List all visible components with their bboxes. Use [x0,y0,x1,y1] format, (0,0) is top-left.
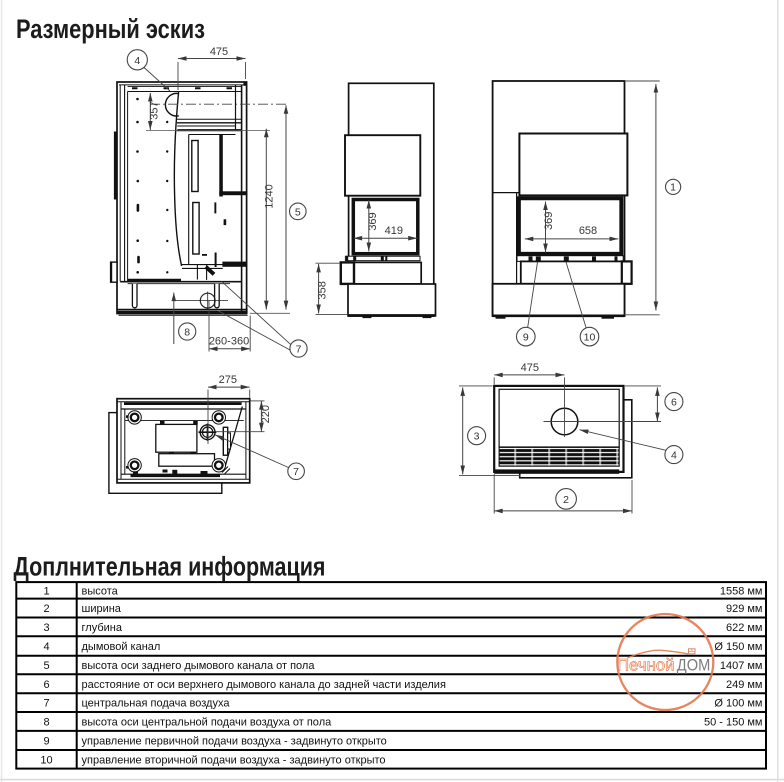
svg-text:50 - 150 мм: 50 - 150 мм [704,717,763,729]
svg-text:3: 3 [474,431,480,443]
svg-text:929 мм: 929 мм [726,603,763,615]
svg-text:Ø 150 мм: Ø 150 мм [714,641,762,653]
svg-text:1558 мм: 1558 мм [720,586,763,598]
svg-text:6: 6 [671,397,677,409]
svg-text:7: 7 [296,344,302,356]
svg-text:ширина: ширина [82,603,122,615]
svg-text:1407 мм: 1407 мм [720,660,763,672]
svg-text:управление первичной подачи во: управление первичной подачи воздуха - за… [82,736,387,748]
svg-text:10: 10 [40,754,52,766]
svg-text:7: 7 [43,698,49,710]
svg-text:10: 10 [584,331,596,343]
svg-text:Печной: Печной [617,655,675,674]
svg-text:8: 8 [184,327,190,339]
svg-text:475: 475 [210,46,228,58]
svg-text:357: 357 [149,101,161,119]
svg-text:5: 5 [43,660,49,672]
svg-text:419: 419 [385,225,403,237]
svg-text:260-360: 260-360 [209,336,249,348]
svg-text:Ø 100 мм: Ø 100 мм [714,698,762,710]
svg-text:дымовой канал: дымовой канал [82,641,161,653]
svg-text:220: 220 [260,405,272,423]
svg-text:1: 1 [670,182,676,194]
svg-text:управление вторичной подачи во: управление вторичной подачи воздуха - за… [82,754,386,766]
svg-text:5: 5 [295,206,301,218]
svg-text:8: 8 [43,717,49,729]
svg-text:центральная подача воздуха: центральная подача воздуха [82,698,231,710]
svg-text:ДОМ: ДОМ [677,655,711,674]
svg-text:2: 2 [563,494,569,506]
svg-text:2: 2 [43,603,49,615]
svg-text:расстояние от оси верхнего дым: расстояние от оси верхнего дымового кана… [82,679,446,691]
svg-text:высота оси центральной подачи: высота оси центральной подачи воздуха от… [82,717,333,729]
svg-text:6: 6 [43,679,49,691]
svg-text:4: 4 [671,450,677,462]
svg-text:369: 369 [543,212,555,230]
svg-text:1: 1 [43,586,49,598]
svg-text:475: 475 [521,362,539,374]
svg-text:4: 4 [134,55,140,67]
svg-text:Размерный эскиз: Размерный эскиз [16,14,205,44]
svg-text:249 мм: 249 мм [726,679,763,691]
svg-text:658: 658 [579,225,597,237]
svg-text:622 мм: 622 мм [726,622,763,634]
svg-text:глубина: глубина [82,622,123,634]
svg-text:9: 9 [523,331,529,343]
svg-text:высота: высота [82,586,119,598]
svg-text:9: 9 [43,736,49,748]
svg-text:358: 358 [316,281,328,299]
svg-text:7: 7 [293,466,299,478]
svg-text:Доплнительная информация: Доплнительная информация [14,552,326,582]
svg-text:высота оси заднего дымового ка: высота оси заднего дымового канала от по… [82,660,316,672]
svg-text:3: 3 [43,622,49,634]
svg-text:1240: 1240 [263,184,275,208]
svg-text:4: 4 [43,641,49,653]
svg-text:369: 369 [367,212,379,230]
svg-text:275: 275 [219,374,237,386]
